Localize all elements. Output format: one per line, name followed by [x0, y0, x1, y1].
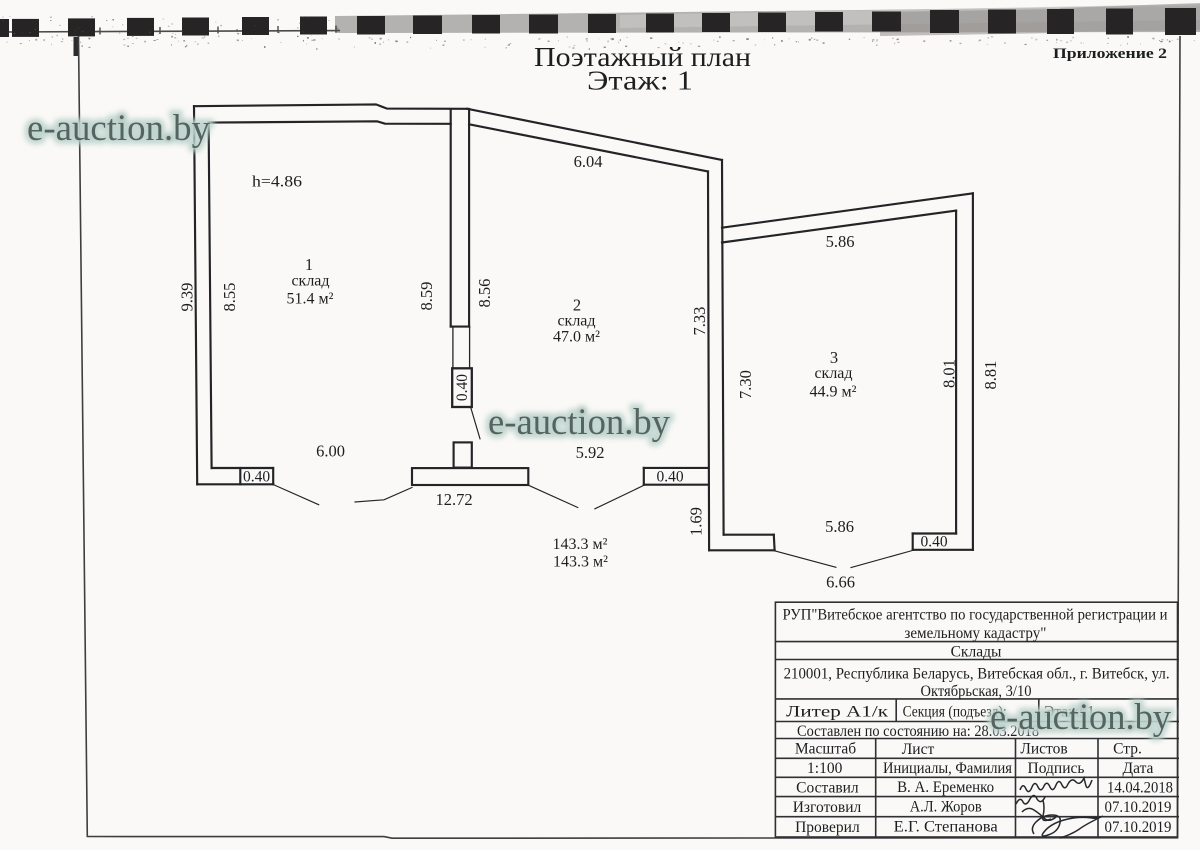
svg-text:6.04: 6.04: [574, 152, 603, 171]
svg-text:Листов: Листов: [1020, 741, 1067, 758]
svg-text:8.81: 8.81: [981, 361, 1000, 390]
svg-text:12.72: 12.72: [435, 490, 472, 509]
svg-text:47.0 м²: 47.0 м²: [553, 329, 600, 346]
svg-text:51.4 м²: 51.4 м²: [287, 291, 334, 308]
svg-text:склад: склад: [557, 313, 595, 330]
svg-text:8.59: 8.59: [417, 282, 436, 311]
svg-text:склад: склад: [291, 273, 329, 290]
svg-text:А.Л. Жоров: А.Л. Жоров: [910, 799, 982, 816]
svg-text:h=4.86: h=4.86: [252, 174, 302, 191]
svg-text:14.04.2018: 14.04.2018: [1107, 780, 1173, 797]
svg-text:РУП"Витебское агентство по гос: РУП"Витебское агентство по государственн…: [783, 607, 1168, 624]
svg-text:210001, Республика Беларусь, В: 210001, Республика Беларусь, Витебская о…: [784, 666, 1170, 683]
svg-text:44.9 м²: 44.9 м²: [810, 384, 857, 401]
svg-text:Инициалы, Фамилия: Инициалы, Фамилия: [883, 760, 1012, 777]
svg-text:143.3 м²: 143.3 м²: [553, 554, 608, 571]
svg-text:143.3 м²: 143.3 м²: [553, 536, 608, 553]
svg-text:7.33: 7.33: [690, 307, 709, 336]
svg-text:e-auction.by: e-auction.by: [27, 108, 210, 149]
svg-text:e-auction.by: e-auction.by: [488, 402, 670, 443]
svg-text:Изготовил: Изготовил: [793, 799, 862, 816]
svg-text:6.66: 6.66: [826, 573, 855, 592]
svg-text:0.40: 0.40: [454, 374, 471, 401]
svg-text:Лист: Лист: [902, 741, 935, 758]
svg-text:5.92: 5.92: [576, 443, 605, 462]
svg-text:5.86: 5.86: [826, 232, 855, 251]
svg-text:Этаж: 1: Этаж: 1: [587, 66, 693, 96]
svg-text:07.10.2019: 07.10.2019: [1105, 799, 1172, 816]
svg-text:Проверил: Проверил: [795, 819, 860, 836]
svg-text:0.40: 0.40: [656, 469, 683, 486]
svg-text:Подпись: Подпись: [1028, 760, 1085, 777]
svg-text:7.30: 7.30: [736, 370, 755, 399]
svg-text:Масштаб: Масштаб: [795, 741, 856, 758]
svg-text:Склады: Склады: [951, 644, 1002, 661]
svg-text:9.39: 9.39: [178, 283, 197, 312]
svg-text:1:100: 1:100: [807, 760, 843, 777]
svg-text:8.55: 8.55: [220, 283, 239, 312]
svg-text:1.69: 1.69: [687, 507, 706, 536]
svg-text:В. А. Еременко: В. А. Еременко: [897, 779, 994, 796]
svg-text:Е.Г. Степанова: Е.Г. Степанова: [894, 819, 998, 836]
svg-text:0.40: 0.40: [920, 534, 947, 551]
svg-text:07.10.2019: 07.10.2019: [1105, 819, 1172, 836]
svg-text:склад: склад: [814, 365, 852, 382]
svg-text:1: 1: [305, 255, 313, 274]
svg-text:Литер А1/к: Литер А1/к: [786, 704, 889, 721]
svg-text:6.00: 6.00: [316, 442, 345, 461]
svg-text:5.86: 5.86: [825, 517, 854, 536]
svg-text:Составил: Составил: [796, 780, 859, 797]
svg-text:Дата: Дата: [1123, 760, 1154, 777]
svg-text:8.01: 8.01: [940, 359, 959, 388]
svg-text:8.56: 8.56: [475, 279, 494, 308]
svg-text:e-auction.by: e-auction.by: [990, 697, 1171, 738]
svg-text:0.40: 0.40: [243, 469, 270, 486]
svg-text:земельному кадастру": земельному кадастру": [904, 625, 1046, 642]
svg-text:Приложение 2: Приложение 2: [1053, 46, 1167, 62]
svg-text:Стр.: Стр.: [1113, 741, 1142, 758]
